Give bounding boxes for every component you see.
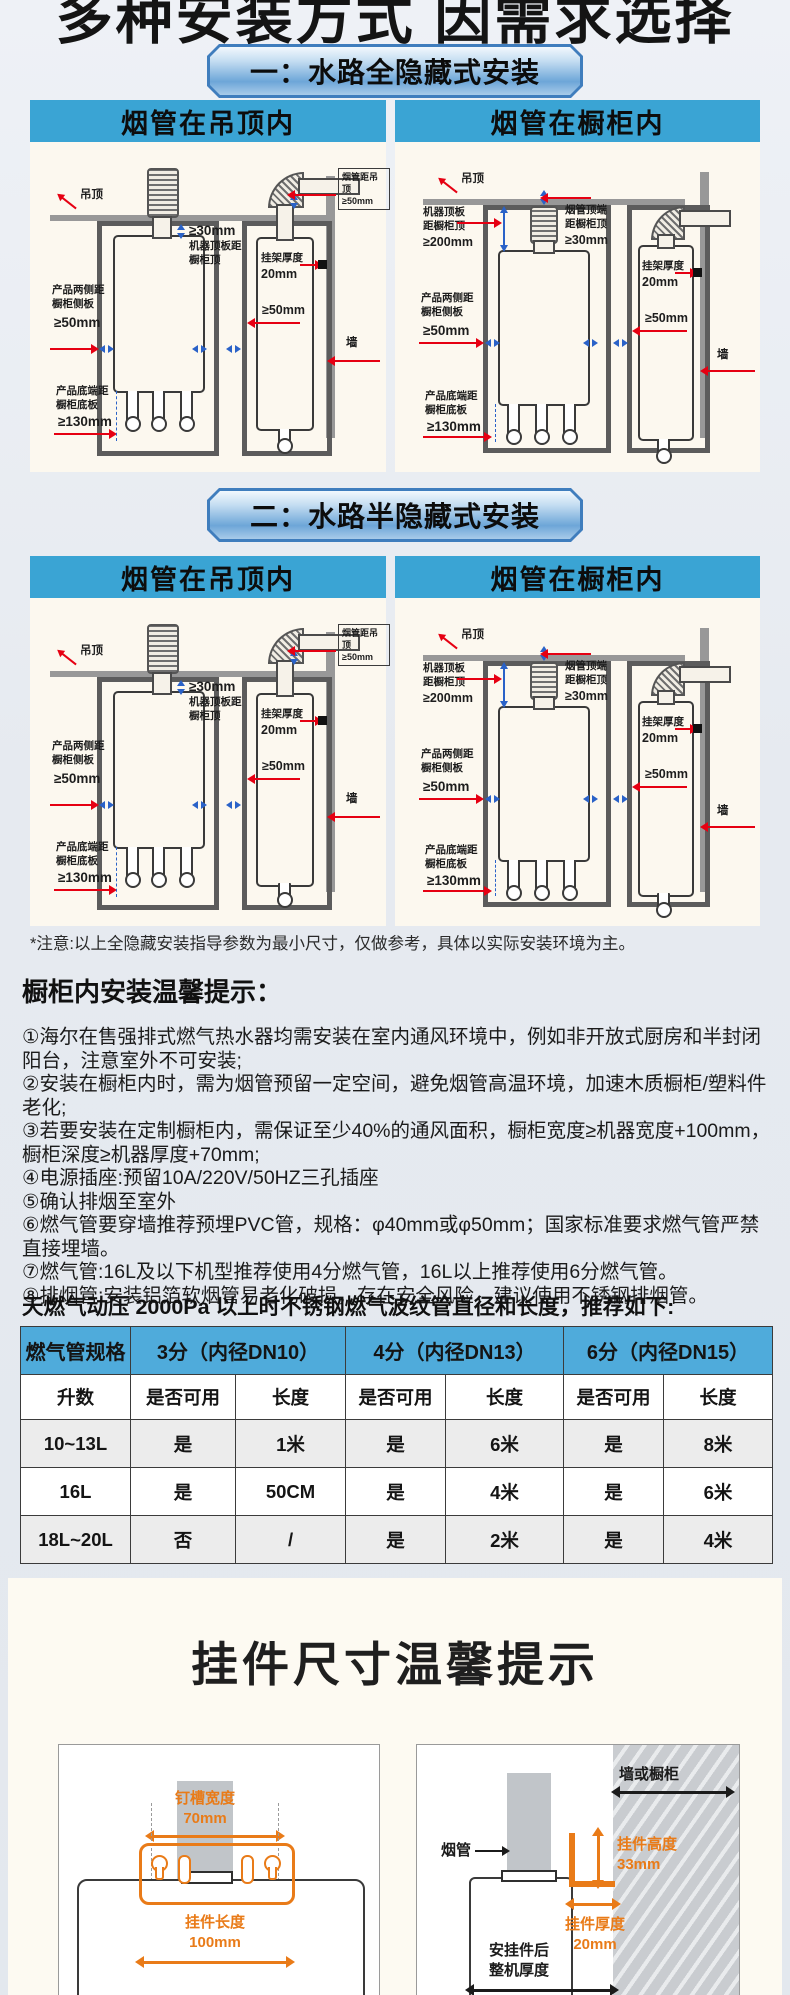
ceiling-label: 吊顶: [80, 188, 103, 203]
cell: 1米: [236, 1420, 346, 1468]
panel-header: 烟管在吊顶内: [30, 556, 386, 598]
water-pipe: [152, 391, 165, 421]
water-pipe: [657, 439, 670, 453]
col-header: 燃气管规格: [21, 1327, 131, 1375]
tip-item: ①海尔在售强排式燃气热水器均需安装在室内通风环境中，例如非开放式厨房和半封闭阳台…: [22, 1026, 776, 1073]
corrugated-flue: [147, 168, 179, 218]
blue-dim-icon: [583, 795, 598, 803]
flue-pipe-horizontal: [679, 666, 731, 683]
orange-dim-arrow: [143, 1961, 287, 1964]
wall-label: 墙: [717, 348, 729, 363]
water-pipe: [278, 429, 291, 443]
dimension-arrow: [707, 826, 755, 828]
dimension-arrow: [54, 433, 110, 435]
water-pipe: [507, 404, 520, 434]
cell: 10~13L: [21, 1420, 131, 1468]
blue-dashed-guide: [495, 860, 496, 896]
blue-dim-icon: [177, 680, 185, 695]
bottom-gap-label: 产品底端距橱柜底板: [56, 841, 112, 868]
water-pipe: [126, 847, 139, 877]
bracket-length-value: 100mm: [189, 1934, 241, 1951]
sub-header: 是否可用: [131, 1375, 236, 1420]
sub-header: 是否可用: [346, 1375, 446, 1420]
bracket-thickness-label: 挂架厚度: [261, 252, 303, 266]
water-pipe: [180, 391, 193, 421]
installation-diagram: 吊顶 ≥30mm 机器顶板距橱柜顶 烟管距吊顶 ≥50mm 挂架厚度 20mm …: [30, 598, 386, 926]
wall-label: 墙: [346, 336, 358, 351]
tip-item: ②安装在橱柜内时，需为烟管预留一定空间，避免烟管高温环境，加速木质橱柜/塑料件老…: [22, 1073, 776, 1120]
cell: 是: [564, 1420, 664, 1468]
blue-dim-icon: [613, 795, 628, 803]
flue-top-gap-value: ≥30mm: [565, 232, 608, 248]
red-arrow-icon: [442, 181, 457, 194]
bracket-length-label: 挂件长度 100mm: [165, 1913, 265, 1952]
cell: 是: [131, 1420, 236, 1468]
water-pipe: [180, 847, 193, 877]
water-pipe: [563, 404, 576, 434]
gap-30mm-label: ≥30mm: [189, 678, 235, 696]
heater-top-notch: [501, 1870, 557, 1882]
col-header: 6分（内径DN15）: [564, 1327, 773, 1375]
flue-pipe: [276, 204, 294, 241]
bracket-thickness-value: 20mm: [642, 730, 678, 746]
machine-top-gap-label: 机器顶板距橱柜顶: [189, 696, 245, 723]
side-gap-value: ≥50mm: [54, 770, 100, 788]
tips-heading: 橱柜内安装温馨提示：: [22, 972, 282, 1009]
blue-dashed-guide: [116, 391, 117, 441]
water-pipe: [563, 860, 576, 890]
black-arrow: [475, 1850, 503, 1852]
keyhole-slot-icon: [264, 1855, 281, 1872]
cell: 8米: [664, 1420, 773, 1468]
water-pipe: [126, 391, 139, 421]
side-gap-50-label: ≥50mm: [262, 302, 305, 318]
bracket-depth-text: 挂件厚度: [565, 1916, 625, 1933]
dimension-arrow: [547, 197, 591, 199]
dimension-arrow: [675, 728, 691, 730]
flue-to-ceiling-label: 烟管距吊顶: [342, 628, 378, 650]
bracket-size-card: 挂件尺寸温馨提示 钉槽宽度 70mm 挂件长度 100mm: [8, 1578, 782, 1995]
blue-dim-icon: [485, 795, 500, 803]
tip-item: ④电源插座:预留10A/220V/50HZ三孔插座: [22, 1167, 776, 1191]
black-dim-arrow: [619, 1791, 727, 1794]
bracket-card-title: 挂件尺寸温馨提示: [8, 1626, 782, 1695]
cell: 否: [131, 1516, 236, 1564]
cell: 是: [564, 1468, 664, 1516]
dimension-arrow: [254, 778, 300, 780]
dimension-arrow: [423, 890, 485, 892]
note-text: *注意:以上全隐藏安装指导参数为最小尺寸，仅做参考，具体以实际安装环境为主。: [30, 930, 770, 954]
corrugated-flue: [530, 662, 558, 700]
sub-header: 是否可用: [564, 1375, 664, 1420]
side-gap-value: ≥50mm: [54, 314, 100, 332]
bracket-thickness-value: 20mm: [261, 266, 297, 282]
slot-width-label: 钉槽宽度 70mm: [159, 1789, 251, 1828]
side-gap-50-label: ≥50mm: [262, 758, 305, 774]
tip-item: ③若要安装在定制橱柜内，需保证至少40%的通风面积，橱柜宽度≥机器宽度+100m…: [22, 1120, 776, 1167]
bottom-gap-label: 产品底端距橱柜底板: [425, 390, 481, 417]
flue-pipe: [657, 234, 675, 249]
blue-dim-icon: [226, 801, 241, 809]
col-header: 3分（内径DN10）: [131, 1327, 346, 1375]
blue-dim-icon: [99, 345, 114, 353]
cell: 6米: [664, 1468, 773, 1516]
gas-hose-table: 燃气管规格 3分（内径DN10） 4分（内径DN13） 6分（内径DN15） 升…: [20, 1326, 773, 1564]
red-arrow-icon: [442, 637, 457, 650]
table-row: 18L~20L 否 / 是 2米 是 4米: [21, 1516, 773, 1564]
bracket-side-diagram: 墙或橱柜 烟管 挂件高度 33mm 挂件厚度 20mm 安挂件后整机厚度: [416, 1744, 740, 1995]
water-pipe: [152, 847, 165, 877]
panel-header: 烟管在吊顶内: [30, 100, 386, 142]
bracket-front-diagram: 钉槽宽度 70mm 挂件长度 100mm: [58, 1744, 380, 1995]
flue-top-gap-value: ≥30mm: [565, 688, 608, 704]
machine-top-gap-label: 机器顶板距橱柜顶: [423, 206, 475, 233]
dimension-arrow: [419, 798, 477, 800]
flue-pipe: [152, 216, 172, 239]
bracket-profile: [569, 1833, 575, 1887]
dimension-arrow: [334, 816, 380, 818]
installation-diagram: 吊顶 ≥30mm 机器顶板距橱柜顶 烟管距吊顶 ≥50mm 挂架厚度 20mm …: [30, 142, 386, 472]
tip-item: ⑦燃气管:16L及以下机型推荐使用4分燃气管，16L以上推荐使用6分燃气管。: [22, 1261, 776, 1285]
panel-header: 烟管在橱柜内: [395, 100, 760, 142]
side-gap-value: ≥50mm: [423, 322, 469, 340]
dimension-arrow: [334, 360, 380, 362]
bracket-height-label: 挂件高度 33mm: [611, 1835, 703, 1874]
side-gap-label: 产品两侧距橱柜侧板: [52, 284, 108, 311]
flue-to-ceiling-value: ≥50mm: [342, 196, 373, 206]
cell: 是: [346, 1420, 446, 1468]
dimension-arrow: [675, 272, 691, 274]
cell: 4米: [446, 1468, 564, 1516]
installation-diagram: 吊顶 机器顶板距橱柜顶 ≥200mm 烟管顶端距橱柜顶 ≥30mm 挂架厚度 2…: [395, 598, 760, 926]
side-gap-50-label: ≥50mm: [645, 310, 688, 326]
installation-diagram: 吊顶 机器顶板距橱柜顶 ≥200mm 烟管顶端距橱柜顶 ≥30mm 挂架厚度 2…: [395, 142, 760, 472]
dimension-arrow: [300, 720, 316, 722]
oval-slot-icon: [241, 1855, 254, 1884]
side-gap-label: 产品两侧距橱柜侧板: [52, 740, 108, 767]
cell: 6米: [446, 1420, 564, 1468]
slot-width-text: 钉槽宽度: [175, 1790, 235, 1807]
table-subheader-row: 升数 是否可用 长度 是否可用 长度 是否可用 长度: [21, 1375, 773, 1420]
flue-to-ceiling-value: ≥50mm: [342, 652, 373, 662]
dimension-arrow: [254, 322, 300, 324]
sub-header: 长度: [446, 1375, 564, 1420]
corrugated-flue: [530, 206, 558, 244]
sub-header: 升数: [21, 1375, 131, 1420]
ceiling-label: 吊顶: [461, 172, 484, 187]
blue-dim-icon: [226, 345, 241, 353]
water-heater-outline: [498, 706, 590, 862]
tips-list: ①海尔在售强排式燃气热水器均需安装在室内通风环境中，例如非开放式厨房和半封闭阳台…: [22, 1026, 776, 1308]
dimension-arrow: [423, 436, 485, 438]
tip-item: ⑤确认排烟至室外: [22, 1191, 776, 1215]
orange-dim-arrow: [573, 1903, 613, 1906]
dimension-arrow: [50, 804, 92, 806]
machine-top-gap-value: ≥200mm: [423, 234, 473, 250]
water-pipe: [657, 893, 670, 907]
wall-label: 墙: [346, 792, 358, 807]
section-2-banner: 二：水路半隐藏式安装: [207, 488, 583, 542]
bottom-gap-label: 产品底端距橱柜底板: [56, 385, 112, 412]
panel-s2-flue-in-ceiling: 烟管在吊顶内 吊顶 ≥30mm 机器顶板距橱柜顶 烟管距吊顶 ≥50mm: [30, 556, 386, 926]
blue-dashed-guide: [116, 847, 117, 897]
red-arrow-icon: [61, 653, 76, 666]
black-dim-arrow: [473, 1989, 611, 1992]
ceiling-label: 吊顶: [80, 644, 103, 659]
bracket-square: [693, 268, 702, 277]
water-pipe: [535, 860, 548, 890]
water-pipe: [278, 883, 291, 897]
flue-pipe: [152, 672, 172, 695]
oval-slot-icon: [178, 1855, 191, 1884]
orange-dim-arrow: [153, 1835, 277, 1838]
dimension-arrow: [639, 330, 687, 332]
cell: 50CM: [236, 1468, 346, 1516]
machine-top-gap-label: 机器顶板距橱柜顶: [189, 240, 245, 267]
cell: 是: [346, 1468, 446, 1516]
sub-header: 长度: [664, 1375, 773, 1420]
blue-dim-icon: [583, 339, 598, 347]
cell: /: [236, 1516, 346, 1564]
gas-table-intro: 天燃气动压 2000Pa 以上时不锈钢燃气波纹管直径和长度，推荐如下:: [22, 1290, 776, 1321]
blue-dim-icon: [485, 339, 500, 347]
section-1-banner: 一：水路全隐藏式安装: [207, 44, 583, 98]
page: 多种安装方式 因需求选择 一：水路全隐藏式安装 烟管在吊顶内 吊顶 ≥30mm …: [0, 0, 790, 1995]
dimension-arrow: [50, 348, 92, 350]
panel-s2-flue-in-cabinet: 烟管在橱柜内 吊顶 机器顶板距橱柜顶 ≥200mm 烟管顶端距橱柜顶 ≥30mm…: [395, 556, 760, 926]
bottom-gap-value: ≥130mm: [58, 869, 112, 887]
flue-to-ceiling-box: 烟管距吊顶 ≥50mm: [338, 624, 390, 666]
ceiling-label: 吊顶: [461, 628, 484, 643]
flue-to-ceiling-label: 烟管距吊顶: [342, 172, 378, 194]
bracket-square: [693, 724, 702, 733]
bottom-gap-label: 产品底端距橱柜底板: [425, 844, 481, 871]
tip-item: ⑥燃气管要穿墙推荐预埋PVC管，规格：φ40mm或φ50mm；国家标准要求燃气管…: [22, 1214, 776, 1261]
bracket-length-text: 挂件长度: [185, 1914, 245, 1931]
blue-measure-line: [503, 212, 505, 246]
machine-depth-label: 安挂件后整机厚度: [485, 1941, 553, 1980]
water-pipe: [507, 860, 520, 890]
cell: 是: [346, 1516, 446, 1564]
blue-dim-icon: [192, 345, 207, 353]
bottom-gap-value: ≥130mm: [427, 418, 481, 436]
bottom-gap-value: ≥130mm: [427, 872, 481, 890]
sub-header: 长度: [236, 1375, 346, 1420]
bracket-thickness-label: 挂架厚度: [261, 708, 303, 722]
flue-to-ceiling-box: 烟管距吊顶 ≥50mm: [338, 168, 390, 210]
dimension-arrow: [300, 264, 316, 266]
cell: 16L: [21, 1468, 131, 1516]
flue-pipe: [533, 240, 555, 254]
panel-s1-flue-in-ceiling: 烟管在吊顶内 吊顶 ≥30mm 机器顶板距橱柜顶 烟管距吊顶 ≥50mm: [30, 100, 386, 472]
corrugated-flue: [147, 624, 179, 674]
panel-s1-flue-in-cabinet: 烟管在橱柜内 吊顶 机器顶板距橱柜顶 ≥200mm 烟管顶端距橱柜顶 ≥30mm…: [395, 100, 760, 472]
blue-measure-line: [503, 668, 505, 702]
dimension-arrow: [54, 889, 110, 891]
dimension-arrow: [547, 653, 591, 655]
bracket-height-value: 33mm: [617, 1856, 660, 1873]
panel-header: 烟管在橱柜内: [395, 556, 760, 598]
water-heater-outline: [498, 250, 590, 406]
table-row: 10~13L 是 1米 是 6米 是 8米: [21, 1420, 773, 1468]
machine-top-gap-value: ≥200mm: [423, 690, 473, 706]
wall-or-cabinet-label: 墙或橱柜: [619, 1765, 679, 1785]
slot-width-value: 70mm: [183, 1810, 226, 1827]
dimension-arrow: [457, 222, 495, 224]
dimension-arrow: [457, 678, 495, 680]
blue-dim-icon: [192, 801, 207, 809]
dimension-arrow: [294, 194, 336, 196]
cell: 18L~20L: [21, 1516, 131, 1564]
cell: 4米: [664, 1516, 773, 1564]
side-gap-label: 产品两侧距橱柜侧板: [421, 748, 477, 775]
flue-top-gap-label: 烟管顶端距橱柜顶: [565, 660, 611, 687]
flue-top-gap-label: 烟管顶端距橱柜顶: [565, 204, 611, 231]
dimension-arrow: [707, 370, 755, 372]
bracket-square: [318, 260, 327, 269]
cell: 是: [564, 1516, 664, 1564]
bracket-square: [318, 716, 327, 725]
bracket-depth-label: 挂件厚度 20mm: [555, 1915, 635, 1954]
bracket-depth-value: 20mm: [573, 1936, 616, 1953]
dimension-arrow: [419, 342, 477, 344]
machine-top-gap-label: 机器顶板距橱柜顶: [423, 662, 475, 689]
flue-pipe: [276, 660, 294, 697]
table-header-row: 燃气管规格 3分（内径DN10） 4分（内径DN13） 6分（内径DN15）: [21, 1327, 773, 1375]
bottom-gap-value: ≥130mm: [58, 413, 112, 431]
side-gap-label: 产品两侧距橱柜侧板: [421, 292, 477, 319]
blue-dim-icon: [99, 801, 114, 809]
orange-vdim-arrow: [597, 1835, 600, 1881]
side-gap-value: ≥50mm: [423, 778, 469, 796]
blue-dim-icon: [177, 224, 185, 239]
cell: 2米: [446, 1516, 564, 1564]
flue-pipe: [533, 696, 555, 710]
flue-pipe-horizontal: [679, 210, 731, 227]
keyhole-slot-icon: [151, 1855, 168, 1872]
water-pipe: [535, 404, 548, 434]
flue-label: 烟管: [441, 1841, 471, 1861]
gap-30mm-label: ≥30mm: [189, 222, 235, 240]
wall-label: 墙: [717, 804, 729, 819]
cell: 是: [131, 1468, 236, 1516]
table-row: 16L 是 50CM 是 4米 是 6米: [21, 1468, 773, 1516]
bracket-thickness-value: 20mm: [642, 274, 678, 290]
side-gap-50-label: ≥50mm: [645, 766, 688, 782]
section-1-banner-label: 一：水路全隐藏式安装: [210, 47, 580, 95]
dimension-arrow: [294, 650, 336, 652]
blue-dashed-guide: [495, 404, 496, 442]
dimension-arrow: [639, 786, 687, 788]
section-2-banner-label: 二：水路半隐藏式安装: [210, 491, 580, 539]
col-header: 4分（内径DN13）: [346, 1327, 564, 1375]
bracket-thickness-value: 20mm: [261, 722, 297, 738]
flue-pipe: [657, 690, 675, 705]
bracket-height-text: 挂件高度: [617, 1836, 677, 1853]
red-arrow-icon: [61, 197, 76, 210]
blue-dim-icon: [613, 339, 628, 347]
flue-shade: [507, 1773, 551, 1877]
